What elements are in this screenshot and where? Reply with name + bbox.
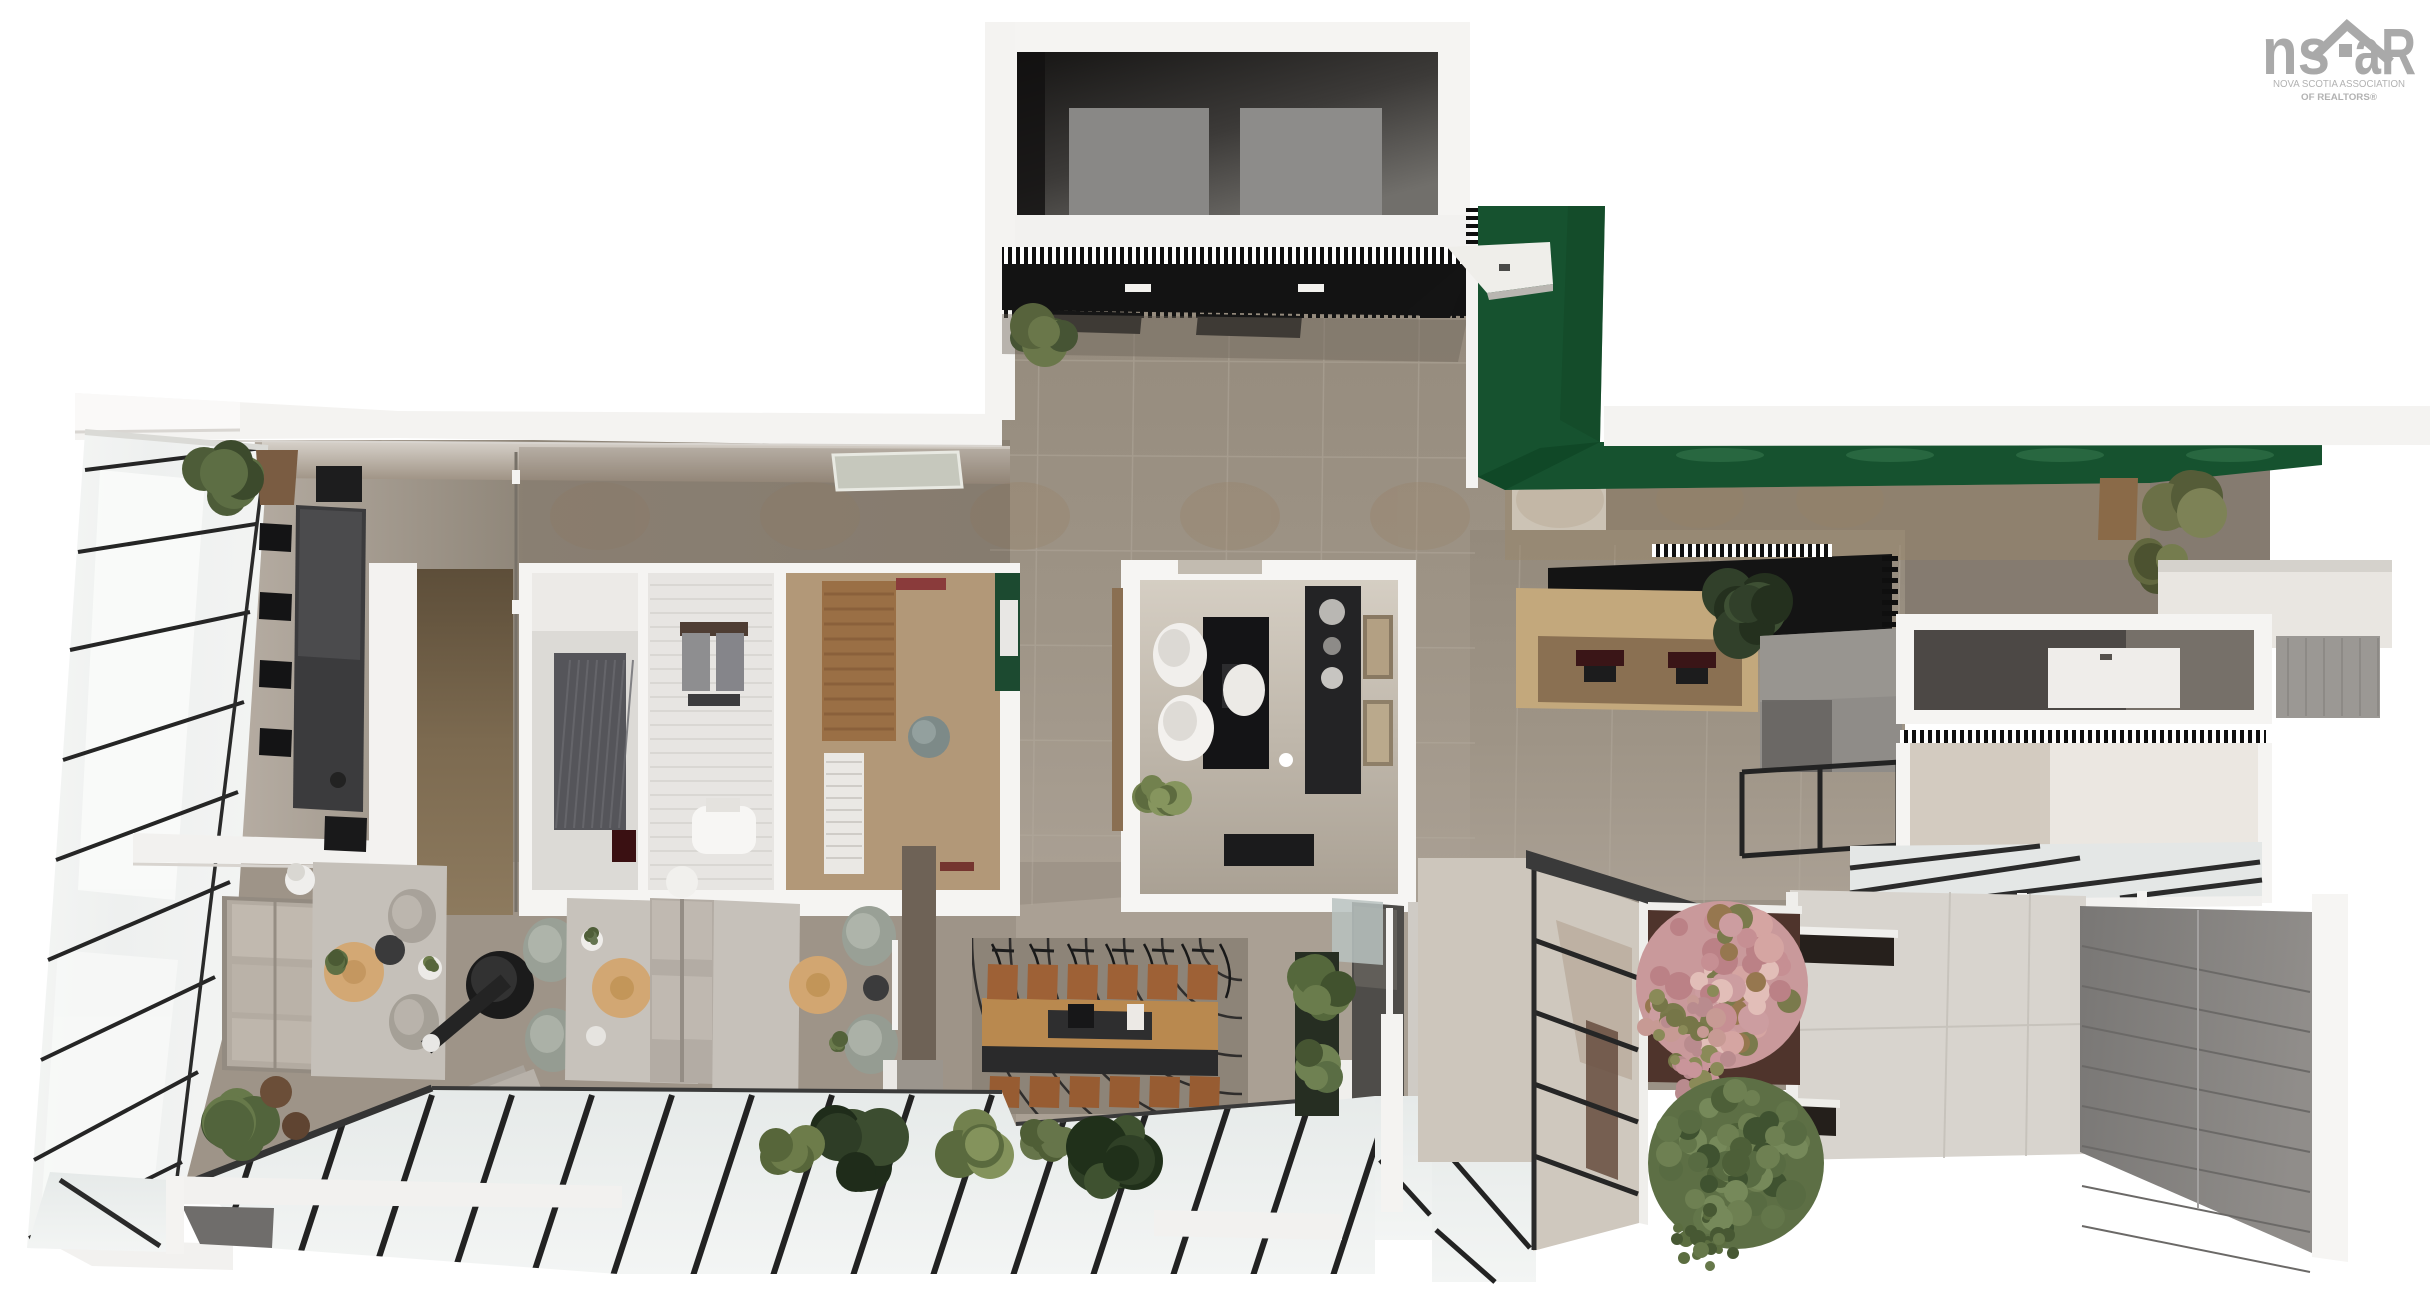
svg-text:NOVA SCOTIA ASSOCIATION: NOVA SCOTIA ASSOCIATION bbox=[2273, 79, 2405, 90]
svg-text:OF REALTORS®: OF REALTORS® bbox=[2301, 92, 2377, 103]
svg-text:aR: aR bbox=[2354, 14, 2416, 88]
